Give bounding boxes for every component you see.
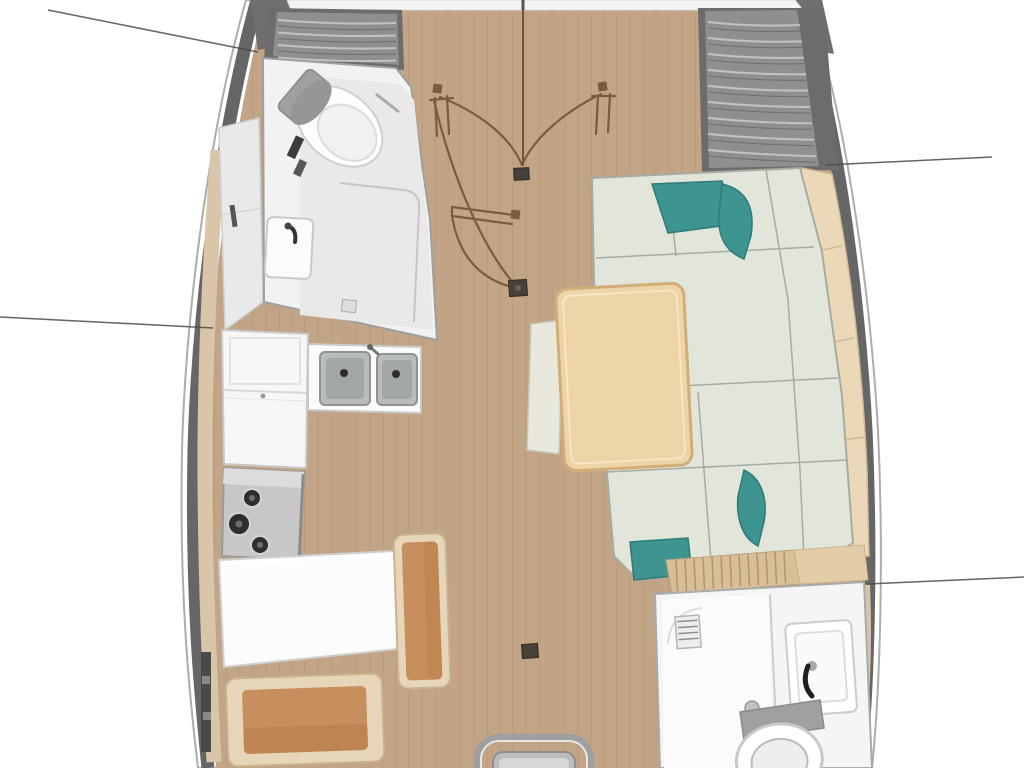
aft-ledge xyxy=(794,545,868,584)
galley-sink-left-drain xyxy=(340,369,348,377)
door-hinge-head xyxy=(510,210,520,220)
hull-hardware-notch-2 xyxy=(203,712,211,720)
aft-head-sink-basin xyxy=(795,630,848,703)
burner-1-cap xyxy=(249,495,255,501)
floor-fitting-aft xyxy=(522,643,539,658)
galley-sink-left-basin xyxy=(326,358,364,399)
salon-table xyxy=(555,283,692,471)
port-hull-hardware xyxy=(201,652,211,752)
door-hinge-left xyxy=(432,83,442,93)
steps-tread-highlight xyxy=(499,758,569,768)
aft-head-vent xyxy=(675,615,701,649)
aft-head-room xyxy=(655,582,872,768)
aft-toilet xyxy=(733,700,826,768)
leader-right-lower xyxy=(868,577,1024,584)
hull-hardware-notch-1 xyxy=(202,676,210,684)
floor-plan-canvas xyxy=(0,0,1024,768)
galley-sink-right-basin xyxy=(382,360,412,399)
leader-left-mid xyxy=(0,317,213,328)
door-hinge-right xyxy=(597,81,607,91)
burner-3-cap xyxy=(257,542,263,548)
forward-head-room xyxy=(263,58,437,340)
galley-sink-right-drain xyxy=(392,370,400,378)
boat-floor-plan xyxy=(0,0,1024,768)
hull-hardware-strip xyxy=(201,652,211,752)
forward-head-faucet-base xyxy=(285,223,292,230)
port-side-locker xyxy=(219,118,263,330)
floor-fitting-dot xyxy=(515,285,521,291)
leader-top-left xyxy=(48,10,258,52)
leader-right-upper xyxy=(826,157,992,165)
floor-fitting-bow xyxy=(514,168,530,181)
galley-cabinet-handle xyxy=(261,394,266,399)
burner-2-cap xyxy=(236,521,243,528)
shower-drain xyxy=(341,299,356,312)
galley-faucet-base xyxy=(367,344,373,350)
chart-table-desk xyxy=(219,551,398,667)
nav-bench-cushion-shade xyxy=(243,724,368,754)
